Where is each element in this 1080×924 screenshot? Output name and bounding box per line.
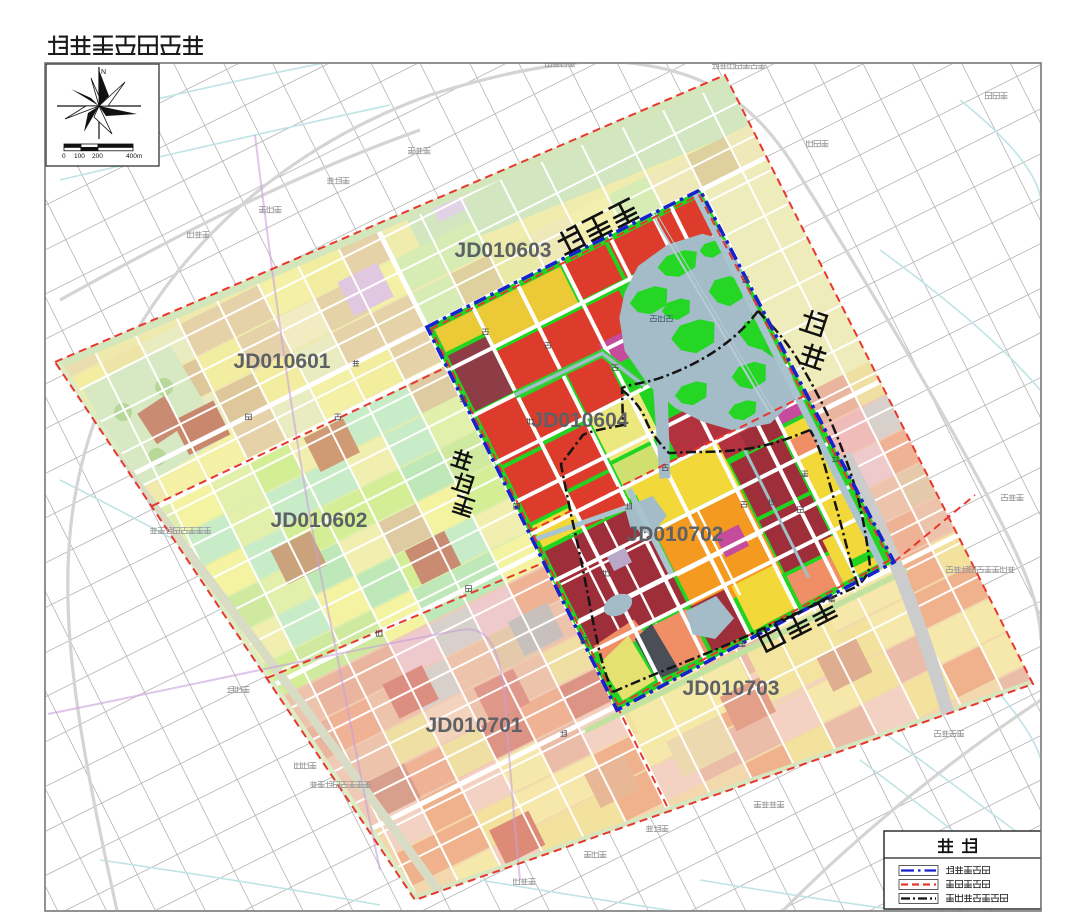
- svg-text:JD010702: JD010702: [627, 523, 724, 546]
- svg-text:200: 200: [92, 153, 103, 160]
- svg-text:JD010602: JD010602: [271, 509, 368, 532]
- svg-text:JD010603: JD010603: [455, 239, 552, 262]
- svg-text:N: N: [101, 69, 106, 76]
- svg-text:JD010701: JD010701: [426, 714, 523, 737]
- svg-text:JD010601: JD010601: [234, 350, 331, 373]
- svg-text:JD010604: JD010604: [532, 409, 629, 432]
- svg-text:0: 0: [62, 153, 66, 160]
- svg-text:JD010703: JD010703: [683, 677, 780, 700]
- svg-text:100: 100: [74, 153, 85, 160]
- svg-text:400m: 400m: [126, 153, 142, 160]
